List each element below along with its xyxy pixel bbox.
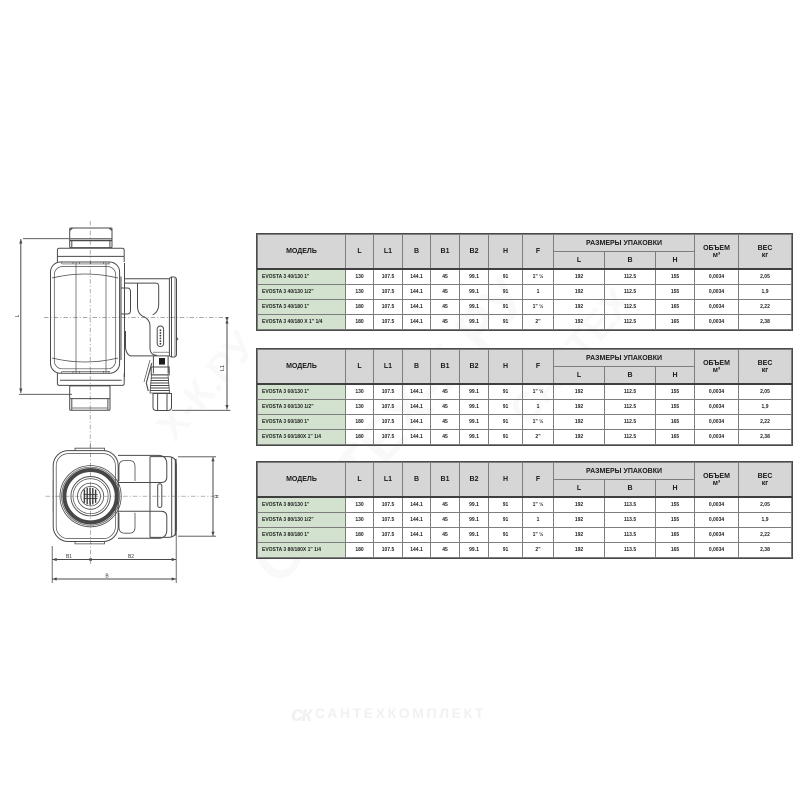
svg-text:L: L bbox=[15, 314, 21, 317]
svg-text:B1: B1 bbox=[66, 554, 72, 560]
svg-text:B2: B2 bbox=[128, 554, 134, 560]
svg-text:H: H bbox=[215, 494, 221, 498]
svg-text:L1: L1 bbox=[220, 365, 226, 371]
